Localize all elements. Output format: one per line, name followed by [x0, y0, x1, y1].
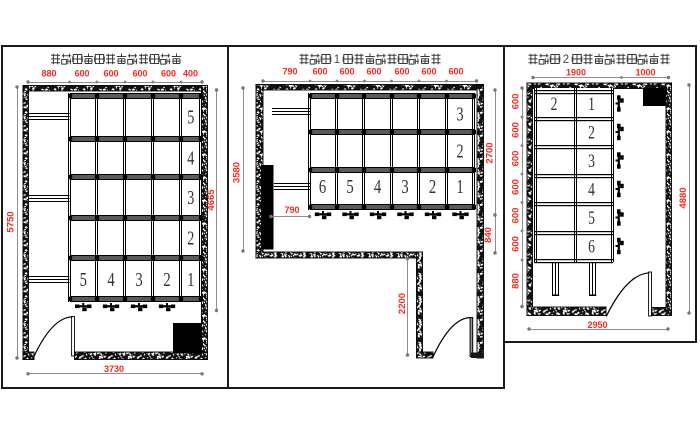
svg-text:1: 1	[456, 174, 463, 197]
svg-text:2: 2	[563, 54, 569, 66]
svg-text:3: 3	[135, 267, 142, 290]
svg-text:1: 1	[588, 93, 595, 115]
svg-text:3: 3	[401, 174, 408, 197]
svg-text:5: 5	[187, 106, 194, 128]
svg-text:600: 600	[394, 67, 409, 77]
svg-text:6: 6	[319, 174, 326, 197]
svg-text:2: 2	[588, 121, 595, 143]
svg-text:600: 600	[132, 69, 147, 79]
svg-text:4: 4	[107, 267, 114, 290]
svg-text:4: 4	[374, 174, 381, 197]
svg-text:1000: 1000	[635, 68, 655, 78]
svg-text:600: 600	[312, 67, 327, 77]
svg-text:5: 5	[588, 207, 595, 229]
svg-text:600: 600	[448, 67, 463, 77]
svg-text:880: 880	[41, 69, 56, 79]
svg-text:600: 600	[339, 67, 354, 77]
svg-text:600: 600	[103, 69, 118, 79]
svg-text:5: 5	[346, 174, 353, 197]
svg-text:400: 400	[183, 69, 198, 79]
svg-text:2950: 2950	[587, 320, 607, 330]
svg-text:2: 2	[429, 174, 436, 197]
svg-text:790: 790	[282, 67, 297, 77]
svg-text:2700: 2700	[484, 142, 495, 163]
svg-text:5: 5	[80, 267, 87, 290]
svg-text:600: 600	[511, 151, 522, 167]
svg-text:600: 600	[511, 122, 522, 138]
svg-text:2: 2	[163, 267, 170, 290]
svg-text:1900: 1900	[566, 68, 586, 78]
svg-text:3: 3	[187, 187, 194, 209]
svg-text:1: 1	[334, 54, 340, 66]
svg-text:2: 2	[456, 140, 463, 162]
svg-text:600: 600	[161, 69, 176, 79]
svg-text:4: 4	[187, 147, 194, 169]
svg-text:600: 600	[511, 94, 522, 110]
svg-text:600: 600	[511, 208, 522, 224]
svg-text:1: 1	[187, 267, 194, 290]
svg-text:4880: 4880	[678, 187, 689, 208]
svg-text:3580: 3580	[231, 162, 242, 183]
svg-text:840: 840	[483, 227, 494, 243]
svg-text:2200: 2200	[397, 293, 408, 314]
svg-text:600: 600	[511, 236, 522, 252]
svg-text:880: 880	[511, 273, 522, 289]
svg-text:3: 3	[588, 150, 595, 172]
svg-text:3: 3	[456, 103, 463, 125]
svg-text:2: 2	[551, 93, 558, 115]
svg-text:5750: 5750	[6, 211, 17, 232]
svg-text:4: 4	[588, 178, 595, 200]
svg-text:4665: 4665	[206, 189, 217, 211]
svg-text:3730: 3730	[104, 364, 124, 374]
svg-text:6: 6	[588, 235, 595, 257]
svg-text:2: 2	[187, 227, 194, 249]
svg-text:600: 600	[74, 69, 89, 79]
svg-text:790: 790	[284, 205, 299, 215]
svg-text:600: 600	[366, 67, 381, 77]
svg-text:600: 600	[421, 67, 436, 77]
svg-text:600: 600	[511, 179, 522, 195]
